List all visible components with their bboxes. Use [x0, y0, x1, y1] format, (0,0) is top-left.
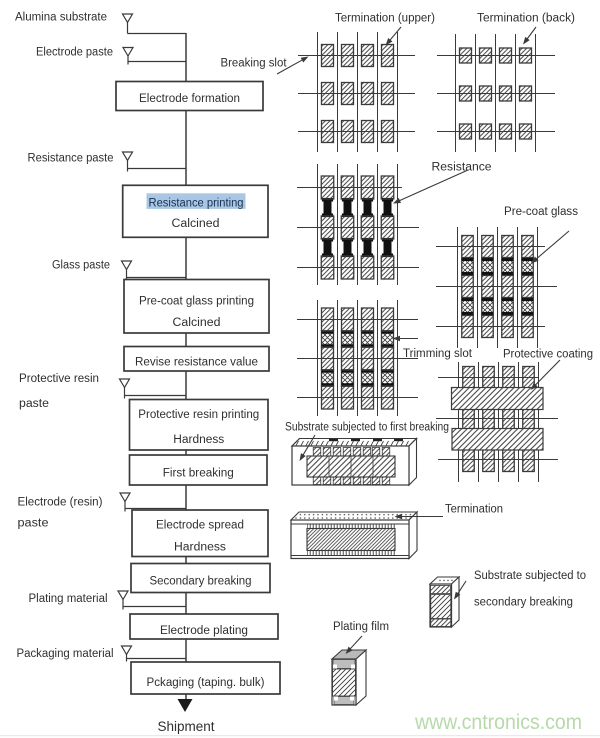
- svg-text:Substrate subjected to first b: Substrate subjected to first breaking: [285, 422, 449, 434]
- svg-text:Calcined: Calcined: [172, 218, 220, 230]
- svg-text:Pre-coat glass printing: Pre-coat glass printing: [139, 296, 254, 308]
- svg-text:Electrode plating: Electrode plating: [160, 625, 248, 637]
- svg-text:Resistance printing: Resistance printing: [149, 198, 244, 210]
- svg-text:Protective resin printing: Protective resin printing: [138, 409, 259, 421]
- svg-text:Electrode (resin): Electrode (resin): [18, 497, 103, 509]
- svg-text:Plating material: Plating material: [29, 593, 108, 605]
- svg-text:Revise resistance value: Revise resistance value: [135, 357, 258, 369]
- svg-text:paste: paste: [18, 518, 49, 530]
- svg-text:Packaging material: Packaging material: [17, 648, 114, 660]
- svg-text:Alumina substrate: Alumina substrate: [15, 12, 107, 24]
- svg-text:paste: paste: [19, 398, 49, 410]
- svg-text:Resistance paste: Resistance paste: [28, 153, 114, 165]
- svg-text:Glass paste: Glass paste: [52, 260, 110, 272]
- svg-text:Calcined: Calcined: [173, 317, 221, 329]
- svg-text:First breaking: First breaking: [163, 468, 234, 480]
- svg-text:www.cntronics.com: www.cntronics.com: [414, 711, 582, 734]
- svg-text:Substrate subjected to: Substrate subjected to: [474, 570, 586, 582]
- svg-text:Termination (upper): Termination (upper): [335, 13, 435, 25]
- svg-text:Hardness: Hardness: [173, 434, 224, 446]
- svg-text:Termination: Termination: [445, 504, 503, 516]
- svg-text:Electrode formation: Electrode formation: [139, 93, 240, 105]
- svg-text:Plating film: Plating film: [333, 621, 389, 633]
- svg-text:Protective resin: Protective resin: [19, 373, 99, 385]
- svg-text:Termination (back): Termination (back): [477, 13, 575, 25]
- svg-text:Secondary breaking: Secondary breaking: [150, 576, 252, 588]
- svg-text:Shipment: Shipment: [157, 719, 214, 734]
- svg-text:secondary breaking: secondary breaking: [474, 597, 573, 609]
- svg-text:Breaking slot: Breaking slot: [221, 58, 288, 70]
- svg-text:Pckaging (taping. bulk): Pckaging (taping. bulk): [147, 677, 265, 689]
- svg-text:Protective coating: Protective coating: [503, 349, 593, 361]
- svg-text:Electrode spread: Electrode spread: [156, 520, 244, 532]
- svg-text:Trimming slot: Trimming slot: [403, 348, 473, 360]
- svg-text:Pre-coat glass: Pre-coat glass: [504, 206, 578, 218]
- svg-text:Hardness: Hardness: [174, 542, 226, 554]
- svg-text:Resistance: Resistance: [432, 162, 492, 174]
- svg-text:Electrode paste: Electrode paste: [36, 47, 113, 59]
